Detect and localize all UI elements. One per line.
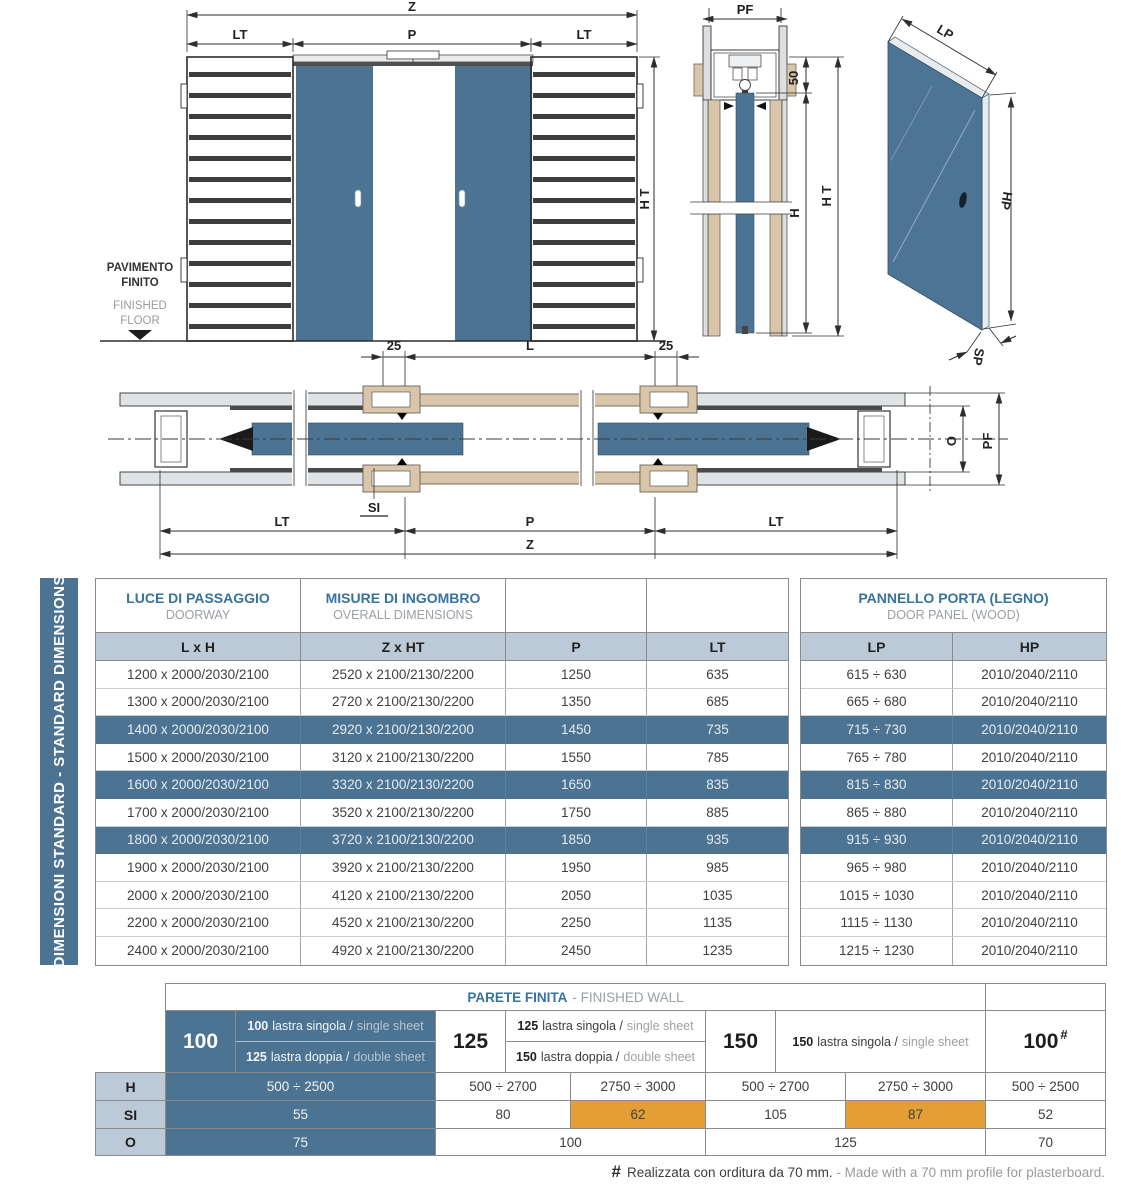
cell-lxh: 2400 x 2000/2030/2100	[96, 937, 301, 965]
door-left	[296, 66, 373, 341]
cell-zxht: 2920 x 2100/2130/2200	[301, 716, 506, 743]
header-panel-en: DOOR PANEL (WOOD)	[887, 608, 1020, 622]
cell-lxh: 1500 x 2000/2030/2100	[96, 744, 301, 771]
h-100p: 500 ÷ 2500	[985, 1072, 1106, 1101]
col-lxh: L x H	[96, 633, 301, 660]
cell-lxh: 1700 x 2000/2030/2100	[96, 799, 301, 826]
cell-zxht: 3720 x 2100/2130/2200	[301, 827, 506, 854]
opt-en: double sheet	[353, 1050, 425, 1064]
o-100: 75	[165, 1128, 436, 1156]
block-150-label: 150	[705, 1010, 776, 1073]
cell-lt: 1135	[647, 909, 788, 936]
sidebar-label: DIMENSIONI STANDARD - STANDARD DIMENSION…	[51, 575, 68, 967]
table-row: 715 ÷ 730 2010/2040/2110	[801, 716, 1106, 744]
cell-lp: 915 ÷ 930	[801, 827, 953, 854]
cell-zxht: 3320 x 2100/2130/2200	[301, 771, 506, 798]
dim-label-o: O	[944, 436, 959, 446]
table-body-left: 1200 x 2000/2030/2100 2520 x 2100/2130/2…	[96, 661, 788, 965]
footnote-en: - Made with a 70 mm profile for plasterb…	[836, 1165, 1105, 1180]
cell-lxh: 1900 x 2000/2030/2100	[96, 854, 301, 881]
cell-lp: 665 ÷ 680	[801, 689, 953, 716]
cell-lt: 685	[647, 689, 788, 716]
block-100-line1: 100 lastra singola / single sheet	[236, 1011, 435, 1042]
cell-lp: 1115 ÷ 1130	[801, 909, 953, 936]
cell-p: 1450	[506, 716, 647, 743]
wall-title-en: - FINISHED WALL	[572, 990, 683, 1005]
cell-lp: 965 ÷ 980	[801, 854, 953, 881]
table-row: 865 ÷ 880 2010/2040/2110	[801, 799, 1106, 827]
cell-lt: 835	[647, 771, 788, 798]
dim-label-lt-right: LT	[577, 27, 592, 42]
cell-lp: 1215 ÷ 1230	[801, 937, 953, 965]
cell-lp: 865 ÷ 880	[801, 799, 953, 826]
cell-lt: 1235	[647, 937, 788, 965]
column-headers-right: LP HP	[801, 632, 1106, 661]
hash-mark: #	[1060, 1027, 1067, 1042]
opt-num: 125	[246, 1050, 267, 1064]
header-panel: PANNELLO PORTA (LEGNO) DOOR PANEL (WOOD)	[801, 579, 1106, 632]
cell-hp: 2010/2040/2110	[953, 689, 1106, 716]
o-100p: 70	[985, 1128, 1106, 1156]
block-150-options: 150 lastra singola / single sheet	[775, 1010, 986, 1073]
cell-hp: 2010/2040/2110	[953, 716, 1106, 743]
opt-num: 100	[247, 1019, 268, 1033]
dim-label-hp: HP	[997, 191, 1015, 212]
dim-label-p: P	[408, 27, 417, 42]
lintel	[293, 62, 533, 66]
cell-hp: 2010/2040/2110	[953, 854, 1106, 881]
table-row: 1900 x 2000/2030/2100 3920 x 2100/2130/2…	[96, 854, 788, 882]
dim-label-h: H	[787, 208, 802, 217]
cell-lt: 985	[647, 854, 788, 881]
opt-it: lastra singola /	[817, 1035, 898, 1049]
cell-p: 1350	[506, 689, 647, 716]
wall-stud-right	[770, 100, 782, 336]
table-row: 665 ÷ 680 2010/2040/2110	[801, 689, 1106, 717]
panel-view-drawing: LP HP SP	[888, 16, 1016, 367]
dim-label-ht: H T	[637, 188, 652, 209]
cell-zxht: 2720 x 2100/2130/2200	[301, 689, 506, 716]
row-label-h: H	[95, 1072, 166, 1101]
cell-lxh: 1400 x 2000/2030/2100	[96, 716, 301, 743]
cell-p: 1750	[506, 799, 647, 826]
block-100-options: 100 lastra singola / single sheet 125 la…	[235, 1010, 436, 1073]
col-hp: HP	[953, 633, 1106, 660]
table-row: 1700 x 2000/2030/2100 3520 x 2100/2130/2…	[96, 799, 788, 827]
opt-en: single sheet	[902, 1035, 969, 1049]
cell-p: 1250	[506, 661, 647, 688]
header-doorway: LUCE DI PASSAGGIO DOORWAY	[96, 579, 301, 632]
dim-label-z-plan: Z	[526, 537, 534, 552]
table-row: 965 ÷ 980 2010/2040/2110	[801, 854, 1106, 882]
footnote: #Realizzata con orditura da 70 mm. - Mad…	[95, 1162, 1105, 1182]
block-125-options: 125 lastra singola / single sheet 150 la…	[505, 1010, 706, 1073]
dim-label-25-left: 25	[387, 338, 401, 353]
dim-label-sp: SP	[969, 347, 987, 367]
cell-lxh: 1800 x 2000/2030/2100	[96, 827, 301, 854]
cell-lxh: 1600 x 2000/2030/2100	[96, 771, 301, 798]
cell-lp: 1015 ÷ 1030	[801, 882, 953, 909]
opt-it: lastra doppia /	[541, 1050, 620, 1064]
block-125-line2: 150 lastra doppia / double sheet	[506, 1042, 705, 1072]
table-row: 815 ÷ 830 2010/2040/2110	[801, 771, 1106, 799]
cell-zxht: 4520 x 2100/2130/2200	[301, 909, 506, 936]
block-100-line2: 125 lastra doppia / double sheet	[236, 1042, 435, 1072]
cell-p: 1850	[506, 827, 647, 854]
cell-lt: 635	[647, 661, 788, 688]
cell-lt: 885	[647, 799, 788, 826]
cell-hp: 2010/2040/2110	[953, 771, 1106, 798]
opt-it: lastra singola /	[542, 1019, 623, 1033]
opt-num: 125	[517, 1019, 538, 1033]
header-overall-en: OVERALL DIMENSIONS	[333, 608, 473, 622]
block-150-line1: 150 lastra singola / single sheet	[776, 1035, 985, 1049]
cell-lt: 785	[647, 744, 788, 771]
column-headers-left: L x H Z x HT P LT	[96, 632, 788, 661]
cell-lp: 765 ÷ 780	[801, 744, 953, 771]
table-row: 1800 x 2000/2030/2100 3720 x 2100/2130/2…	[96, 827, 788, 855]
h-150-a: 500 ÷ 2700	[705, 1072, 846, 1101]
table-row: 765 ÷ 780 2010/2040/2110	[801, 744, 1106, 772]
wall-table-title: PARETE FINITA - FINISHED WALL	[165, 983, 986, 1011]
cell-p: 1650	[506, 771, 647, 798]
door-handle-right	[459, 190, 465, 207]
cell-zxht: 4920 x 2100/2130/2200	[301, 937, 506, 965]
si-100: 55	[165, 1100, 436, 1129]
cell-hp: 2010/2040/2110	[953, 937, 1106, 965]
header-empty-p	[506, 579, 647, 632]
header-overall: MISURE DI INGOMBRO OVERALL DIMENSIONS	[301, 579, 506, 632]
dim-label-50: 50	[786, 71, 801, 85]
opt-it: lastra singola /	[272, 1019, 353, 1033]
cell-p: 1950	[506, 854, 647, 881]
cell-p: 1550	[506, 744, 647, 771]
floor-label-it-1: PAVIMENTO	[107, 262, 174, 274]
si-125-b: 62	[570, 1100, 706, 1129]
table-row: 1600 x 2000/2030/2100 3320 x 2100/2130/2…	[96, 771, 788, 799]
table-row: 1300 x 2000/2030/2100 2720 x 2100/2130/2…	[96, 689, 788, 717]
h-125-b: 2750 ÷ 3000	[570, 1072, 706, 1101]
cell-lt: 1035	[647, 882, 788, 909]
dim-label-lt-plan-left: LT	[275, 514, 290, 529]
cell-lp: 815 ÷ 830	[801, 771, 953, 798]
front-view-drawing: Z LT P LT H T PAVIMENTO FINITO FINISHED …	[100, 0, 666, 341]
dim-label-si: SI	[368, 500, 380, 515]
cell-lp: 715 ÷ 730	[801, 716, 953, 743]
cell-zxht: 3920 x 2100/2130/2200	[301, 854, 506, 881]
footnote-it: Realizzata con orditura da 70 mm.	[627, 1165, 833, 1180]
table-row: 615 ÷ 630 2010/2040/2110	[801, 661, 1106, 689]
dim-label-ht-section: H T	[819, 185, 834, 206]
table-row: 1200 x 2000/2030/2100 2520 x 2100/2130/2…	[96, 661, 788, 689]
cell-hp: 2010/2040/2110	[953, 661, 1106, 688]
footnote-hash-icon: #	[612, 1162, 621, 1181]
dim-label-lt-plan-right: LT	[769, 514, 784, 529]
cell-p: 2050	[506, 882, 647, 909]
cell-lxh: 1200 x 2000/2030/2100	[96, 661, 301, 688]
col-zxht: Z x HT	[301, 633, 506, 660]
opt-en: double sheet	[623, 1050, 695, 1064]
opt-en: single sheet	[627, 1019, 694, 1033]
o-150: 125	[705, 1128, 986, 1156]
table-row: 1015 ÷ 1030 2010/2040/2110	[801, 882, 1106, 910]
section-view-drawing: PF	[688, 2, 844, 336]
cell-lt: 735	[647, 716, 788, 743]
h-125-a: 500 ÷ 2700	[435, 1072, 571, 1101]
floor-marker-triangle	[128, 330, 152, 340]
row-label-si: SI	[95, 1100, 166, 1129]
cell-hp: 2010/2040/2110	[953, 799, 1106, 826]
dim-label-z: Z	[408, 0, 416, 14]
block-125-line1: 125 lastra singola / single sheet	[506, 1011, 705, 1042]
table-body-right: 615 ÷ 630 2010/2040/2110 665 ÷ 680 2010/…	[801, 661, 1106, 965]
table-row: 1400 x 2000/2030/2100 2920 x 2100/2130/2…	[96, 716, 788, 744]
cell-hp: 2010/2040/2110	[953, 909, 1106, 936]
cell-zxht: 3520 x 2100/2130/2200	[301, 799, 506, 826]
wall-title-empty	[985, 983, 1106, 1011]
table-row: 2200 x 2000/2030/2100 4520 x 2100/2130/2…	[96, 909, 788, 937]
wall-stud-left	[708, 100, 720, 336]
table-row: 1500 x 2000/2030/2100 3120 x 2100/2130/2…	[96, 744, 788, 772]
floor-label-en-2: FLOOR	[120, 315, 160, 327]
dim-label-l: L	[526, 338, 534, 353]
col-p: P	[506, 633, 647, 660]
table-row: 2400 x 2000/2030/2100 4920 x 2100/2130/2…	[96, 937, 788, 965]
block-125-label: 125	[435, 1010, 506, 1073]
h-150-b: 2750 ÷ 3000	[845, 1072, 986, 1101]
cell-hp: 2010/2040/2110	[953, 882, 1106, 909]
table-row: 2000 x 2000/2030/2100 4120 x 2100/2130/2…	[96, 882, 788, 910]
wall-title-it: PARETE FINITA	[467, 990, 567, 1005]
opt-it: lastra doppia /	[271, 1050, 350, 1064]
finished-wall-table: PARETE FINITA - FINISHED WALL 100 100 la…	[95, 983, 1106, 1156]
cell-hp: 2010/2040/2110	[953, 827, 1106, 854]
opt-num: 150	[792, 1035, 813, 1049]
cell-lxh: 2000 x 2000/2030/2100	[96, 882, 301, 909]
dim-label-lt-left: LT	[233, 27, 248, 42]
cell-hp: 2010/2040/2110	[953, 744, 1106, 771]
table-row: 1215 ÷ 1230 2010/2040/2110	[801, 937, 1106, 965]
dim-label-25-right: 25	[659, 338, 673, 353]
door-right	[455, 66, 532, 341]
opt-num: 150	[516, 1050, 537, 1064]
cell-p: 2450	[506, 937, 647, 965]
cell-p: 2250	[506, 909, 647, 936]
datasheet-page: Z LT P LT H T PAVIMENTO FINITO FINISHED …	[0, 0, 1121, 1197]
table-row: 915 ÷ 930 2010/2040/2110	[801, 827, 1106, 855]
floor-label-it-2: FINITO	[121, 277, 159, 289]
si-125-a: 80	[435, 1100, 571, 1129]
h-100: 500 ÷ 2500	[165, 1072, 436, 1101]
cell-zxht: 3120 x 2100/2130/2200	[301, 744, 506, 771]
table-row: 1115 ÷ 1130 2010/2040/2110	[801, 909, 1106, 937]
section-sidebar: DIMENSIONI STANDARD - STANDARD DIMENSION…	[40, 578, 78, 965]
technical-drawings: Z LT P LT H T PAVIMENTO FINITO FINISHED …	[0, 0, 1121, 575]
cell-zxht: 4120 x 2100/2130/2200	[301, 882, 506, 909]
col-lt: LT	[647, 633, 788, 660]
si-150-a: 105	[705, 1100, 846, 1129]
block-100p-label: 100#	[985, 1010, 1106, 1073]
cell-lxh: 1300 x 2000/2030/2100	[96, 689, 301, 716]
track-bracket	[387, 51, 439, 59]
block-100p-number: 100	[1023, 1030, 1058, 1054]
header-empty-lt	[647, 579, 788, 632]
dim-label-pf-section: PF	[737, 2, 754, 17]
si-100p: 52	[985, 1100, 1106, 1129]
block-100-label: 100	[165, 1010, 236, 1073]
header-panel-it: PANNELLO PORTA (LEGNO)	[858, 590, 1048, 606]
door-handle-left	[355, 190, 361, 207]
cell-lp: 615 ÷ 630	[801, 661, 953, 688]
dim-label-p-plan: P	[526, 514, 535, 529]
cell-zxht: 2520 x 2100/2130/2200	[301, 661, 506, 688]
roller-wheel	[740, 80, 751, 91]
o-125: 100	[435, 1128, 706, 1156]
cell-lxh: 2200 x 2000/2030/2100	[96, 909, 301, 936]
header-doorway-en: DOORWAY	[166, 608, 230, 622]
col-lp: LP	[801, 633, 953, 660]
header-overall-it: MISURE DI INGOMBRO	[326, 590, 481, 606]
plan-view-drawing: 25 L 25 SI LT P LT Z	[108, 338, 1008, 559]
dimensions-table-left: LUCE DI PASSAGGIO DOORWAY MISURE DI INGO…	[95, 578, 789, 966]
row-label-o: O	[95, 1128, 166, 1156]
dim-label-pf-plan: PF	[980, 433, 995, 450]
dimensions-table-right: PANNELLO PORTA (LEGNO) DOOR PANEL (WOOD)…	[800, 578, 1107, 966]
opt-en: single sheet	[357, 1019, 424, 1033]
si-150-b: 87	[845, 1100, 986, 1129]
header-doorway-it: LUCE DI PASSAGGIO	[126, 590, 270, 606]
floor-label-en-1: FINISHED	[113, 300, 167, 312]
cell-lt: 935	[647, 827, 788, 854]
